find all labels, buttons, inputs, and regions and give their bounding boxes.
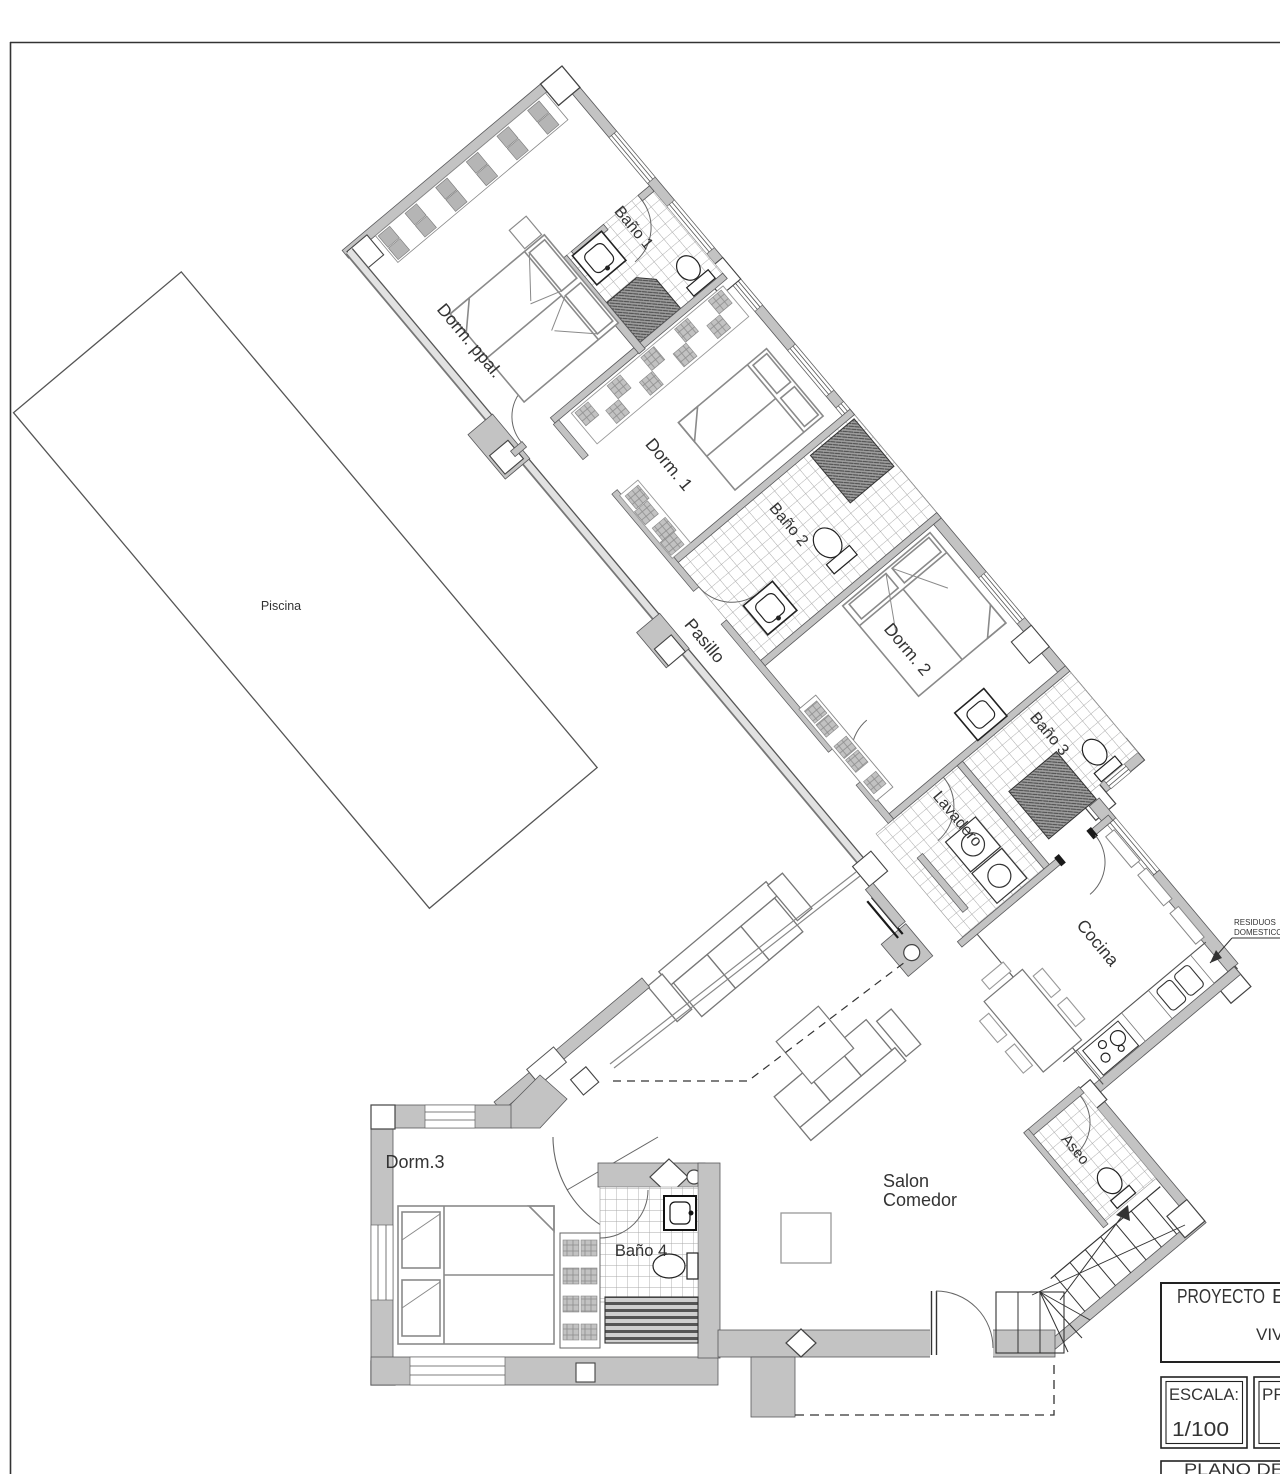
svg-text:Baño 4: Baño 4 bbox=[615, 1242, 667, 1260]
svg-text:PLANO DE: PLANO DE bbox=[1184, 1460, 1280, 1474]
svg-text:DOMESTICO: DOMESTICO bbox=[1234, 928, 1280, 937]
svg-text:RESIDUOS: RESIDUOS bbox=[1234, 918, 1276, 927]
svg-text:ED: ED bbox=[1272, 1286, 1280, 1308]
svg-text:PROYECTO: PROYECTO bbox=[1177, 1286, 1265, 1308]
svg-text:Comedor: Comedor bbox=[883, 1190, 957, 1210]
svg-text:ESCALA:: ESCALA: bbox=[1169, 1385, 1239, 1404]
svg-text:1/100: 1/100 bbox=[1172, 1419, 1229, 1441]
svg-text:Salon: Salon bbox=[883, 1171, 929, 1191]
svg-text:VIVI: VIVI bbox=[1256, 1325, 1280, 1344]
svg-text:Dorm.3: Dorm.3 bbox=[385, 1152, 444, 1172]
svg-text:PR: PR bbox=[1262, 1385, 1280, 1404]
svg-text:Piscina: Piscina bbox=[261, 599, 301, 613]
